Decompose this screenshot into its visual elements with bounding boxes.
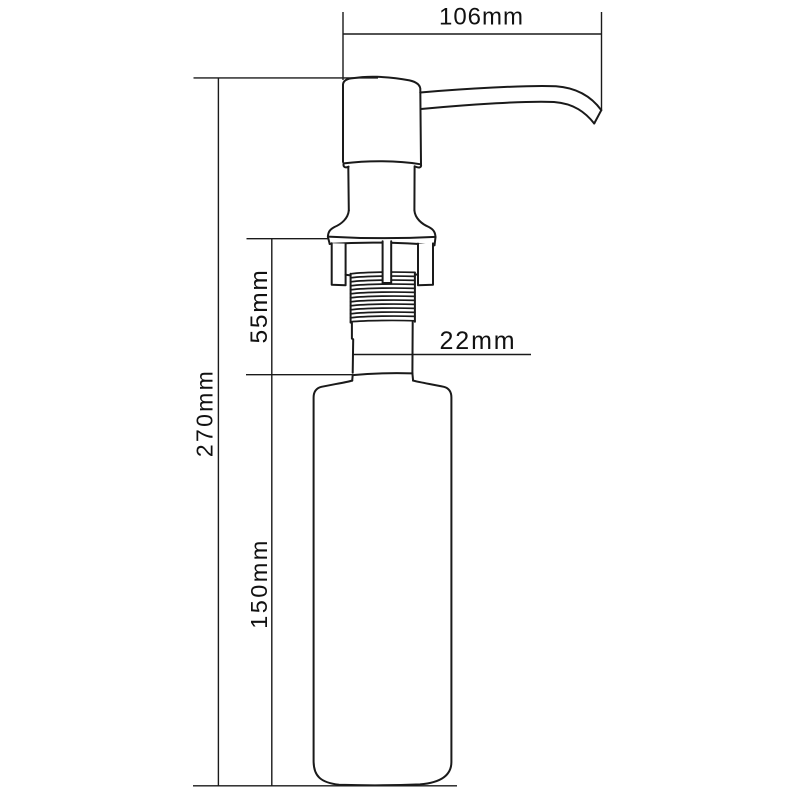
svg-text:106mm: 106mm (439, 4, 524, 31)
svg-text:22mm: 22mm (439, 327, 516, 355)
svg-text:270mm: 270mm (192, 369, 218, 457)
svg-text:150mm: 150mm (246, 538, 272, 628)
svg-text:55mm: 55mm (246, 269, 273, 344)
